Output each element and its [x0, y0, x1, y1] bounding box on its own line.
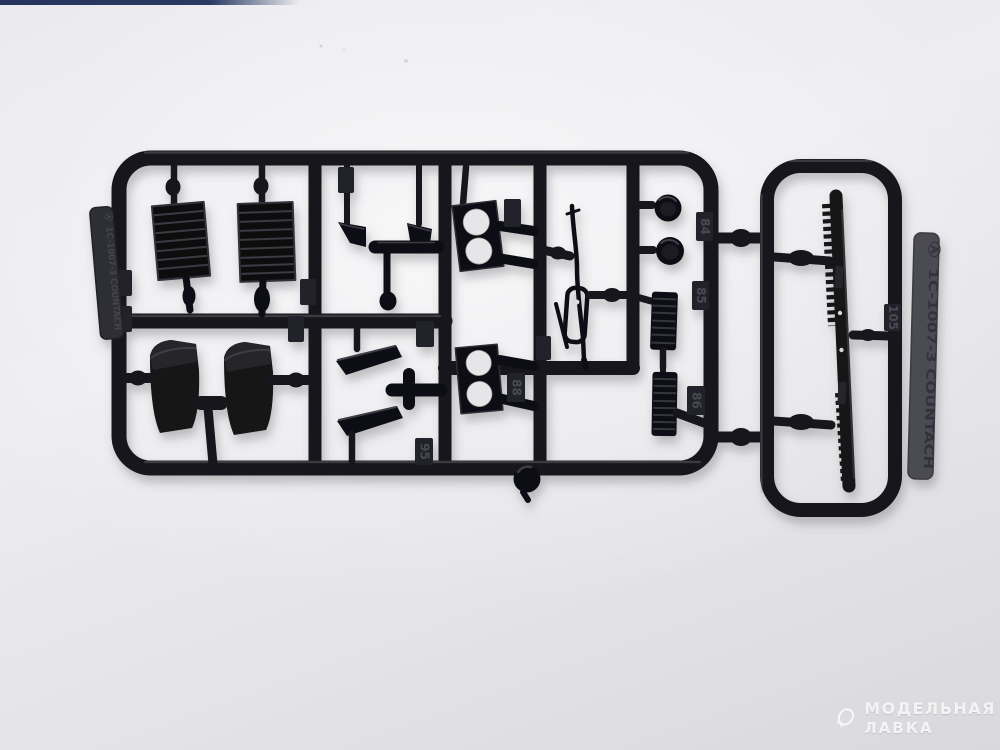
grille-part-1	[152, 166, 210, 310]
seat-part-1	[126, 340, 199, 433]
part-number-label: 84	[698, 218, 712, 235]
brand-tab-right: Ⓐ 1C-1007-3 COUNTACH	[908, 233, 942, 480]
watermark: МОДЕЛЬНАЯ ЛАВКА	[836, 688, 996, 748]
part-number-label: 105	[886, 305, 900, 330]
mirror-part-1	[633, 195, 682, 222]
watermark-text: МОДЕЛЬНАЯ ЛАВКА	[864, 699, 996, 738]
part-number-label: 88	[510, 379, 524, 396]
part-number-tag-105: 105	[884, 304, 901, 331]
part-number-tag-85: 85	[692, 281, 709, 310]
watermark-line1: МОДЕЛЬНАЯ	[864, 699, 996, 719]
part-number-tag-84: 84	[696, 212, 713, 241]
t-lever-part	[375, 243, 438, 311]
runner-joints	[730, 229, 752, 446]
wedge-part-1	[336, 322, 402, 375]
part-number-tag	[536, 336, 551, 360]
part-number-tag-88: 88	[507, 373, 525, 402]
part-number-tag-95: 95	[415, 438, 433, 465]
grille-part-2	[238, 166, 296, 314]
part-number-tag	[338, 167, 354, 193]
sill-part	[774, 196, 890, 486]
seat-part-2	[224, 342, 273, 435]
plate-part-upper	[452, 167, 534, 271]
sprue-photo: 84 85 86 88 95	[0, 0, 1000, 750]
bracket-part-2	[407, 166, 432, 251]
mirror-part-2	[633, 237, 684, 265]
watermark-logo-icon	[836, 694, 856, 742]
part-number-label: 85	[694, 287, 708, 304]
t-connector-part	[392, 374, 441, 404]
sprue: 84 85 86 88 95	[89, 153, 942, 511]
louver-part-1	[633, 292, 678, 368]
wedge-part-2	[337, 406, 403, 462]
part-number-tag	[288, 316, 304, 342]
part-number-tag-86: 86	[687, 386, 705, 415]
watermark-line2: ЛАВКА	[864, 719, 996, 738]
part-number-label: 95	[418, 443, 432, 460]
wiper-part	[543, 206, 631, 368]
photo-background: 84 85 86 88 95	[0, 0, 1000, 750]
part-number-tag	[300, 279, 316, 305]
brand-logo-glyph: Ⓐ	[102, 212, 115, 221]
part-number-tag	[416, 321, 434, 347]
knob-ball-part	[514, 466, 541, 501]
part-number-label: 86	[690, 392, 704, 409]
brand-logo-glyph: Ⓐ	[927, 241, 942, 258]
dust-specks	[320, 45, 618, 159]
part-number-tag	[504, 199, 521, 227]
